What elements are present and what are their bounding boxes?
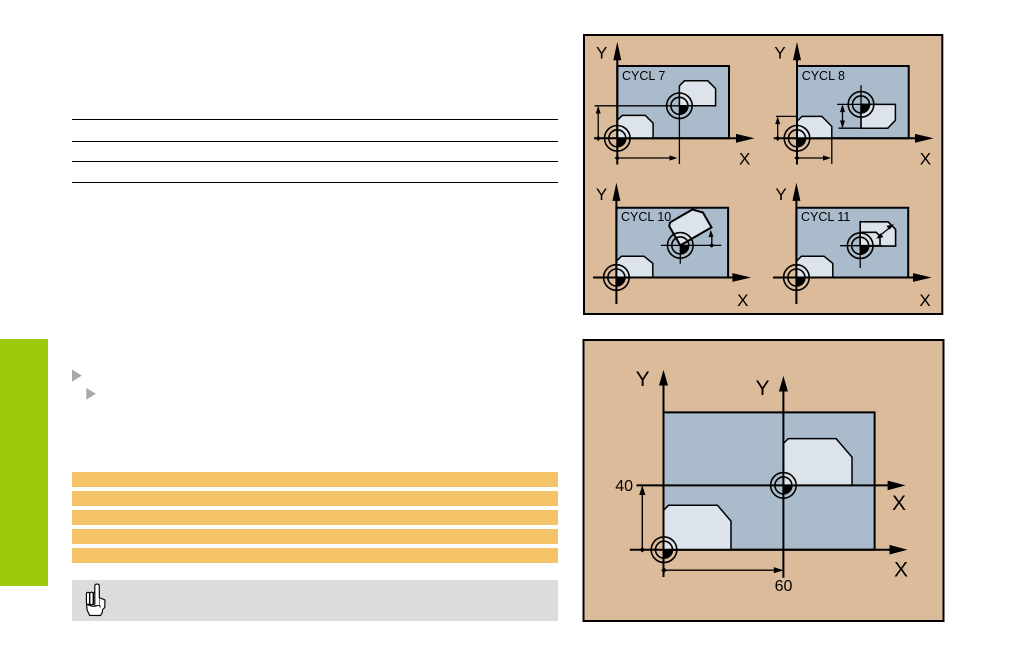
- svg-text:60: 60: [775, 578, 793, 595]
- svg-text:Y: Y: [596, 44, 607, 63]
- svg-text:X: X: [919, 291, 930, 310]
- svg-text:Y: Y: [755, 377, 769, 400]
- svg-text:X: X: [739, 150, 750, 169]
- svg-text:40: 40: [615, 478, 633, 495]
- svg-text:Y: Y: [636, 368, 650, 391]
- svg-text:Y: Y: [774, 44, 785, 63]
- svg-text:CYCL 11: CYCL 11: [801, 210, 850, 224]
- svg-text:Y: Y: [596, 185, 607, 204]
- svg-text:X: X: [892, 492, 906, 515]
- svg-text:X: X: [920, 150, 931, 169]
- svg-text:CYCL 10: CYCL 10: [621, 210, 671, 224]
- svg-text:X: X: [894, 558, 908, 581]
- svg-text:CYCL 8: CYCL 8: [802, 69, 845, 83]
- svg-text:X: X: [737, 291, 748, 310]
- svg-text:Y: Y: [775, 185, 786, 204]
- svg-text:CYCL 7: CYCL 7: [622, 69, 665, 83]
